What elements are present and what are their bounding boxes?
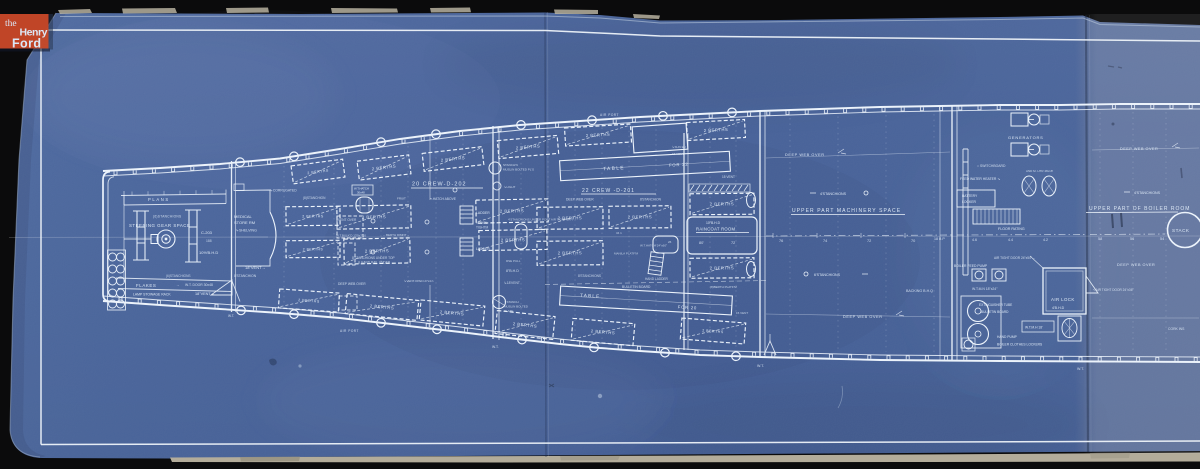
svg-text:the: the [5, 19, 17, 29]
